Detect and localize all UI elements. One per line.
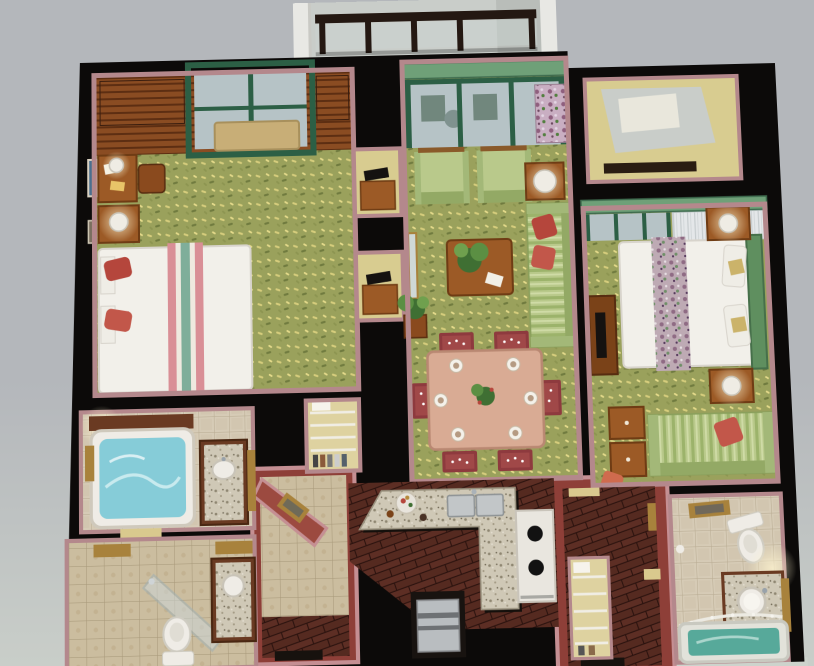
armchair-right bbox=[476, 145, 532, 203]
tub-water bbox=[99, 437, 186, 519]
toilet-tank bbox=[162, 651, 193, 666]
sofa-arm bbox=[526, 203, 571, 214]
jetted-tub bbox=[91, 428, 194, 527]
bedroom-2 bbox=[581, 196, 781, 497]
tv-cabinet bbox=[360, 181, 395, 210]
louvered-closet-doors bbox=[316, 75, 349, 120]
king-bed bbox=[99, 241, 255, 399]
floorplan-render bbox=[0, 0, 814, 666]
vanity-sink bbox=[212, 460, 235, 479]
tv-niche bbox=[356, 252, 404, 321]
railing-glass bbox=[315, 19, 537, 50]
red-throw-pillow bbox=[530, 244, 556, 270]
hanging-clothes bbox=[313, 454, 347, 467]
window-bench bbox=[215, 121, 300, 151]
desk-lamp bbox=[109, 158, 123, 172]
appliance-closet bbox=[411, 591, 467, 659]
skylight-patch bbox=[618, 93, 680, 132]
table-lamp bbox=[533, 170, 556, 193]
table-lamp bbox=[722, 376, 741, 395]
gold-accent-pillow bbox=[731, 316, 748, 333]
red-accent-pillow bbox=[103, 308, 133, 332]
dining-chair bbox=[442, 451, 477, 473]
table-lamp bbox=[110, 213, 128, 232]
tv-niche bbox=[354, 148, 402, 216]
master-vanity bbox=[200, 440, 248, 525]
living-dining-room bbox=[392, 58, 581, 482]
gold-mirror bbox=[247, 450, 256, 511]
private-balcony bbox=[585, 76, 742, 182]
queen-bed bbox=[619, 235, 768, 372]
door-threshold bbox=[644, 569, 661, 580]
desk-papers bbox=[110, 181, 125, 192]
tv-cabinet bbox=[363, 285, 398, 315]
towel-stack bbox=[312, 402, 331, 411]
gold-mirror bbox=[215, 541, 252, 555]
door-threshold bbox=[569, 488, 600, 497]
bathtub bbox=[679, 621, 789, 662]
front-door-gap bbox=[275, 650, 323, 661]
wall-art bbox=[93, 544, 130, 558]
window-wall-glass bbox=[585, 213, 671, 242]
loveseat bbox=[648, 412, 776, 476]
coffee-table bbox=[447, 239, 513, 296]
dining-chair bbox=[497, 449, 533, 471]
bathroom-2 bbox=[670, 493, 802, 662]
vanity-granite-top bbox=[216, 562, 252, 638]
floral-bed-runner bbox=[651, 237, 691, 371]
striped-sofa bbox=[526, 203, 575, 347]
striped-bed-runner bbox=[167, 242, 204, 395]
armchair-back bbox=[482, 190, 529, 203]
main-balcony bbox=[293, 0, 558, 61]
walk-in-closet bbox=[306, 399, 361, 471]
hanging-clothes bbox=[578, 646, 585, 656]
master-bedroom bbox=[88, 61, 359, 399]
entry-hall bbox=[562, 486, 664, 666]
appliance-band bbox=[417, 612, 459, 618]
vestibule bbox=[254, 475, 350, 661]
tv-screen bbox=[595, 312, 607, 358]
plan-layer bbox=[0, 0, 814, 666]
vanity-granite-top bbox=[204, 444, 244, 521]
range-stove bbox=[516, 510, 556, 602]
door-threshold bbox=[120, 528, 161, 538]
towel-stack bbox=[573, 562, 590, 573]
armchair-left bbox=[414, 147, 470, 205]
framed-art bbox=[647, 503, 656, 531]
second-vanity bbox=[209, 556, 256, 643]
armchair-back bbox=[419, 191, 466, 204]
louvered-closet-doors bbox=[100, 79, 185, 125]
hanging-clothes bbox=[589, 645, 596, 655]
wall-art bbox=[85, 446, 94, 482]
vanity-sink bbox=[223, 575, 244, 597]
wire-shelf-closet bbox=[569, 557, 612, 659]
desk-chair bbox=[139, 164, 165, 193]
sofa-arm bbox=[531, 336, 576, 347]
floral-quilt bbox=[535, 84, 567, 143]
table-lamp bbox=[719, 214, 738, 233]
